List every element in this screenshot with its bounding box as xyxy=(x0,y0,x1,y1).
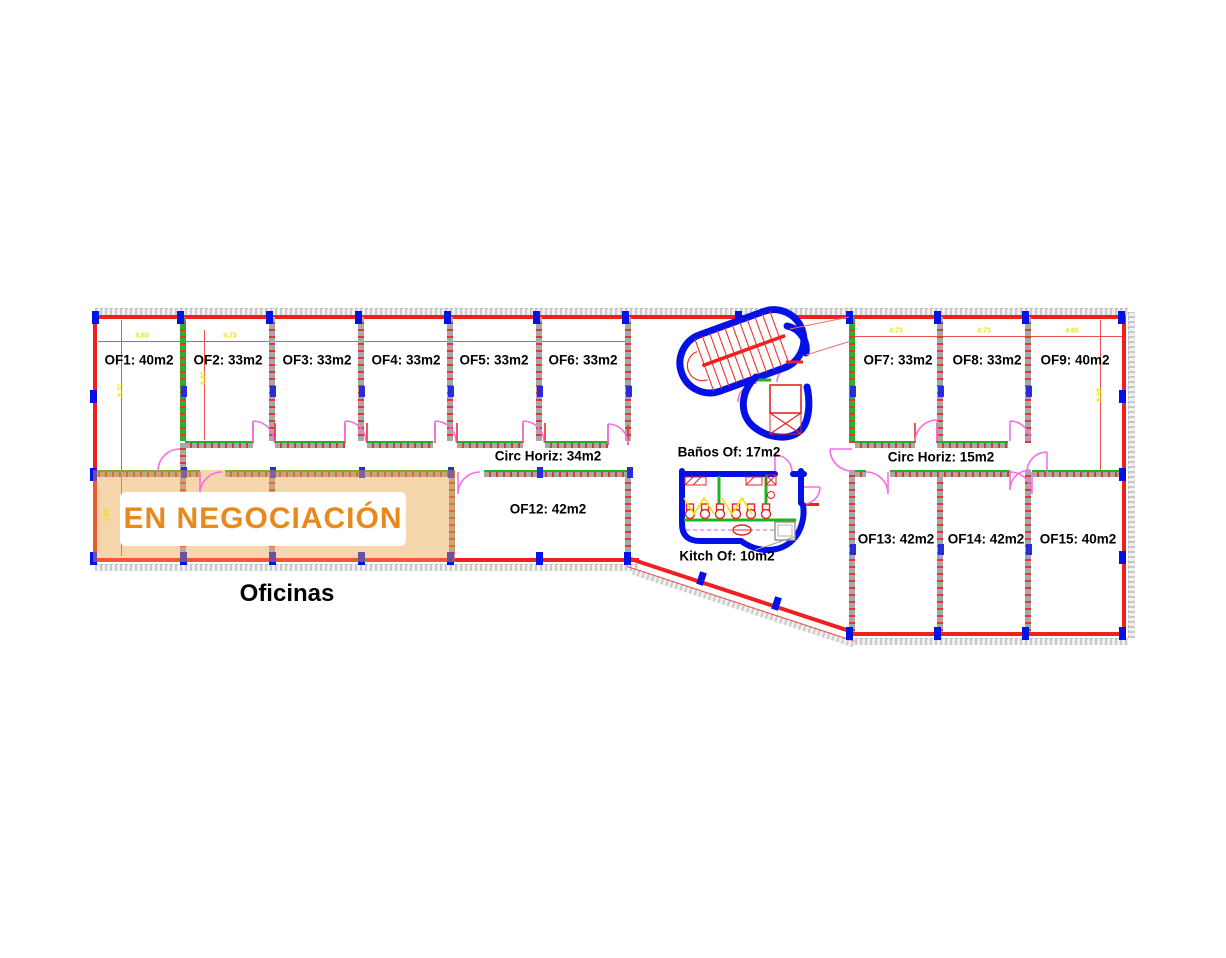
dim-label: 4.73 xyxy=(223,333,237,340)
toilets xyxy=(686,504,771,519)
column-marker xyxy=(1119,627,1126,640)
column-marker xyxy=(735,311,742,324)
column-marker xyxy=(1119,390,1126,403)
room-label-of7: OF7: 33m2 xyxy=(863,353,932,368)
wall-segment xyxy=(185,441,253,448)
dim-label: 4.73 xyxy=(977,328,991,335)
stall-screens xyxy=(684,498,752,514)
column-marker xyxy=(850,544,856,555)
column-marker xyxy=(1022,311,1029,324)
column-marker xyxy=(850,386,856,397)
sink xyxy=(775,522,795,540)
negotiation-banner: EN NEGOCIACIÓN xyxy=(120,492,406,546)
column-marker xyxy=(846,311,853,324)
wall-segment xyxy=(890,470,1010,477)
room-label-of15: OF15: 40m2 xyxy=(1040,532,1117,547)
bathroom-fixtures xyxy=(685,475,776,499)
column-marker xyxy=(448,386,454,397)
floor-drain xyxy=(733,525,751,535)
column-marker xyxy=(846,627,853,640)
column-marker xyxy=(90,390,97,403)
room-label-of5: OF5: 33m2 xyxy=(459,353,528,368)
wall-segment-diagonal xyxy=(630,557,853,634)
column-marker xyxy=(934,627,941,640)
room-label-of12: OF12: 42m2 xyxy=(510,502,587,517)
column-marker xyxy=(938,386,944,397)
column-marker xyxy=(624,552,631,565)
wall-segment xyxy=(275,441,345,448)
room-label-of13: OF13: 42m2 xyxy=(858,532,935,547)
floor-plan-canvas: EN NEGOCIACIÓN xyxy=(0,0,1226,958)
dim-label: 6.91 xyxy=(201,371,208,385)
dim-label: 8.58 xyxy=(1097,388,1104,402)
negotiation-banner-label: EN NEGOCIACIÓN xyxy=(123,502,402,536)
column-marker xyxy=(444,311,451,324)
room-label-of2: OF2: 33m2 xyxy=(193,353,262,368)
wall-segment xyxy=(937,317,943,443)
wall-segment xyxy=(358,317,364,441)
column-marker xyxy=(181,386,187,397)
column-marker xyxy=(1119,468,1126,481)
area-label-banos: Baños Of: 17m2 xyxy=(678,445,781,460)
hatch-strip xyxy=(95,308,1128,315)
hatch-strip xyxy=(855,638,1128,645)
wall-segment xyxy=(1025,317,1031,443)
column-marker xyxy=(1026,386,1032,397)
wall-segment xyxy=(855,470,866,477)
wall-segment xyxy=(180,317,186,441)
room-label-of14: OF14: 42m2 xyxy=(948,532,1025,547)
dim-label: 4.60 xyxy=(135,333,149,340)
bathroom-partitions xyxy=(684,476,796,520)
dimension-line xyxy=(855,336,1122,337)
wall-segment xyxy=(1032,470,1047,477)
wall-segment xyxy=(1047,470,1122,477)
wall-segment xyxy=(93,315,1126,319)
bathroom-block xyxy=(682,471,804,550)
column-marker xyxy=(359,386,365,397)
area-label-kitchen: Kitch Of: 10m2 xyxy=(679,549,774,564)
column-marker xyxy=(177,311,184,324)
column-marker xyxy=(1026,544,1032,555)
wall-segment xyxy=(855,441,915,448)
wall-segment xyxy=(937,441,1008,448)
dim-label: 8.71 xyxy=(118,383,125,397)
wall-segment xyxy=(457,441,523,448)
wall-segment xyxy=(536,317,542,441)
wall-segment xyxy=(269,317,275,441)
room-label-of8: OF8: 33m2 xyxy=(952,353,1021,368)
wall-segment xyxy=(484,470,630,477)
room-label-of1: OF1: 40m2 xyxy=(104,353,173,368)
column-marker xyxy=(938,544,944,555)
wall-segment xyxy=(447,317,453,441)
column-marker xyxy=(934,311,941,324)
wall-line-thin xyxy=(627,566,853,641)
wall-segment xyxy=(849,317,855,443)
wall-segment xyxy=(625,470,631,558)
column-marker xyxy=(1119,551,1126,564)
plan-title: Oficinas xyxy=(240,580,335,608)
column-marker xyxy=(266,311,273,324)
column-marker xyxy=(355,311,362,324)
column-marker xyxy=(270,386,276,397)
dimension-line xyxy=(204,330,205,440)
dimension-line xyxy=(98,341,630,342)
column-marker xyxy=(537,467,543,478)
hatch-strip xyxy=(1128,312,1135,638)
wall-segment xyxy=(545,441,608,448)
column-marker xyxy=(1022,627,1029,640)
area-label-circ-left: Circ Horiz: 34m2 xyxy=(495,449,602,464)
elevator xyxy=(743,377,809,437)
column-marker xyxy=(622,311,629,324)
room-label-of9: OF9: 40m2 xyxy=(1040,353,1109,368)
room-label-of4: OF4: 33m2 xyxy=(371,353,440,368)
room-label-of6: OF6: 33m2 xyxy=(548,353,617,368)
wall-segment xyxy=(803,503,819,506)
column-marker xyxy=(1118,311,1125,324)
column-marker xyxy=(92,311,99,324)
wall-segment xyxy=(849,632,1126,636)
room-label-of3: OF3: 33m2 xyxy=(282,353,351,368)
column-marker xyxy=(627,467,633,478)
column-marker xyxy=(533,311,540,324)
hatch-strip xyxy=(95,564,638,571)
dim-label: 4.73 xyxy=(889,328,903,335)
sink-basin xyxy=(778,525,792,536)
wall-segment xyxy=(367,441,433,448)
dim-label: 4.60 xyxy=(1065,328,1079,335)
wall-segment xyxy=(625,317,631,441)
column-marker xyxy=(537,386,543,397)
dim-label: 3.95 xyxy=(104,508,111,522)
column-marker xyxy=(536,552,543,565)
area-label-circ-right: Circ Horiz: 15m2 xyxy=(888,450,995,465)
column-marker xyxy=(626,386,632,397)
